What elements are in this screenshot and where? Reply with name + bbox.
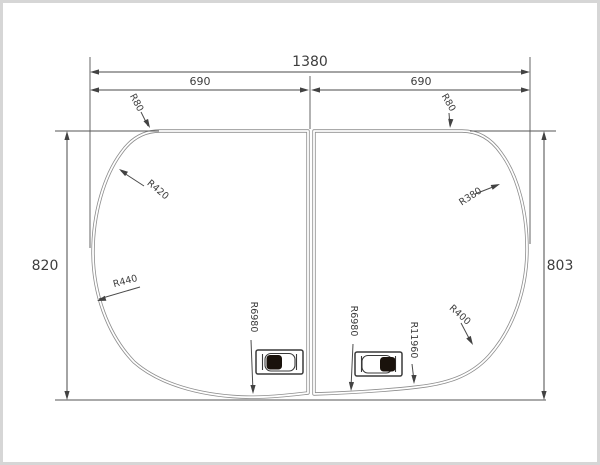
handle-grip-dark [267,355,283,370]
leader-arrowhead [447,119,453,128]
arrowhead-top [64,131,69,140]
dim-left-height: 820 [32,131,70,400]
right-panel-handle-icon [355,352,402,376]
right-height-value: 803 [547,258,574,274]
dim-right-height: 803 [541,131,573,400]
lid-panels [93,131,527,397]
left-panel-handle-icon [256,350,303,374]
radius-label: R11960 [408,322,419,359]
radius-callout-top-left: R80 [127,92,152,129]
radius-label: R80 [127,92,145,114]
arrowhead-left [90,69,99,74]
drawing-canvas: 1380 690 690 820 803 R80 R80 [0,0,600,465]
radius-label: R80 [439,92,458,114]
radius-label: R6980 [248,302,259,333]
arrowhead-left [90,87,99,92]
arrowhead-bottom [64,391,69,400]
left-panel-width-value: 690 [190,75,211,88]
arrowhead-right [300,87,309,92]
arrowhead-right [521,69,530,74]
overall-width-value: 1380 [292,54,328,70]
radius-label: R6980 [348,306,359,337]
dim-right-panel-width: 690 [311,75,530,93]
dim-overall-width: 1380 [90,54,530,75]
right-panel-width-value: 690 [411,75,432,88]
dimension-drawing: 1380 690 690 820 803 R80 R80 [0,0,600,465]
left-height-value: 820 [32,258,59,274]
arrowhead-right [521,87,530,92]
dim-left-panel-width: 690 [90,75,309,93]
radius-callout-top-right: R80 [439,92,458,128]
arrowhead-top [541,131,546,140]
arrowhead-bottom [541,391,546,400]
arrowhead-left [311,87,320,92]
handle-grip-dark [380,357,396,372]
right-panel-outline [314,131,527,394]
